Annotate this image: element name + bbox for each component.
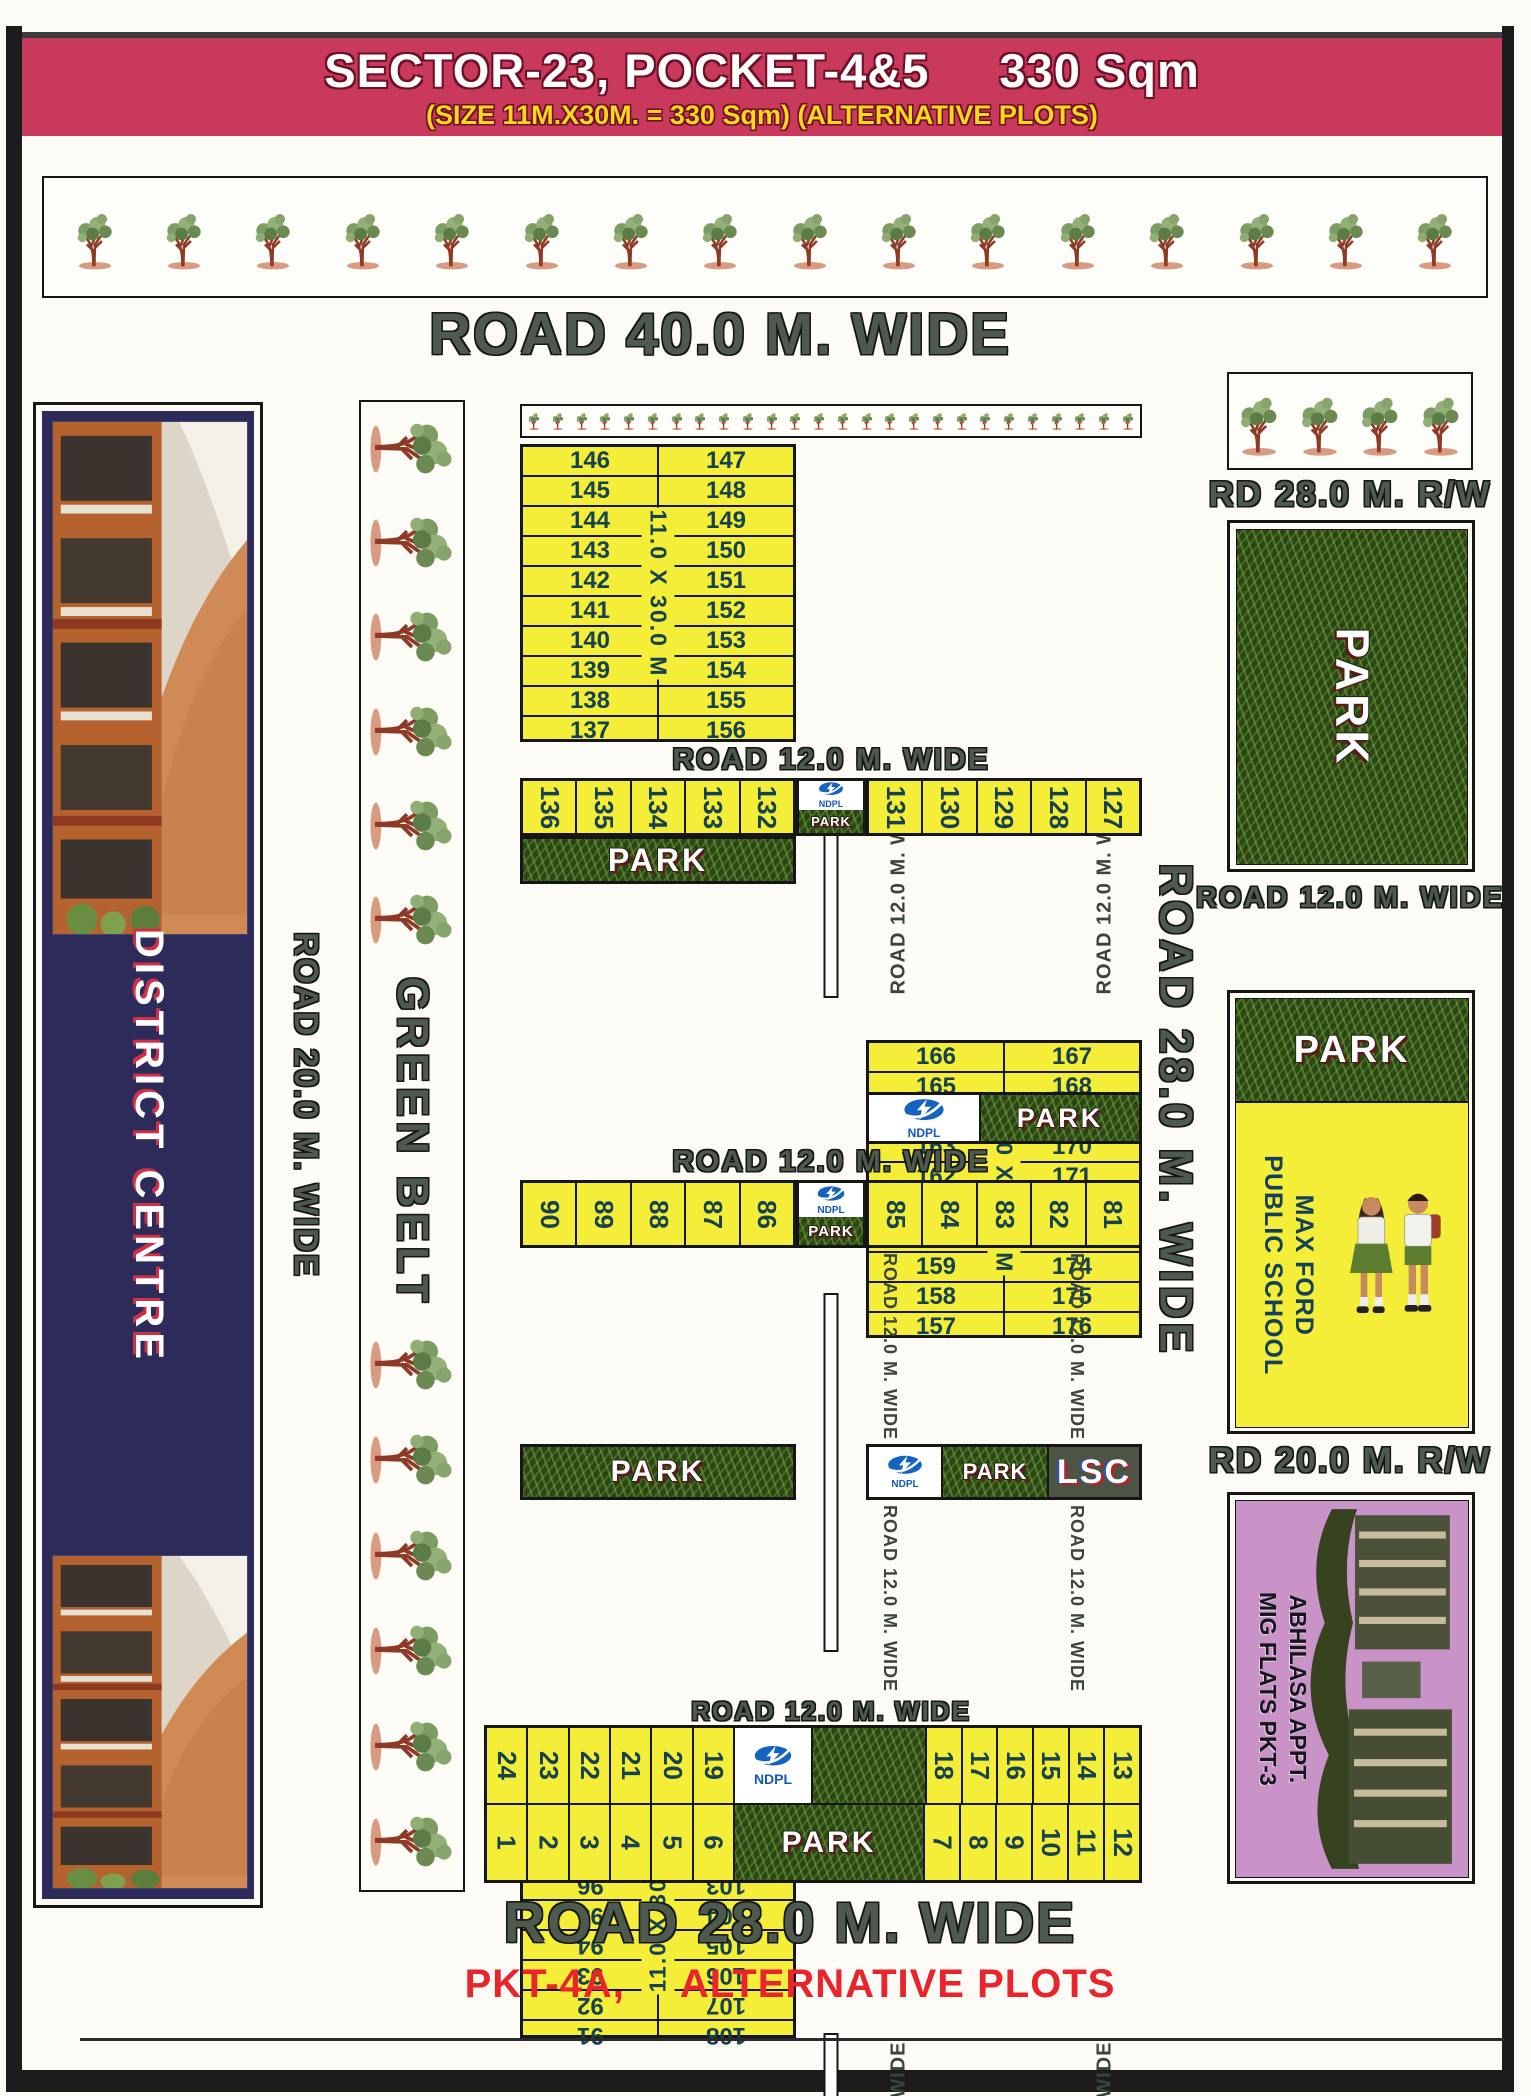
park-label: PARK bbox=[608, 842, 708, 879]
park-label: PARK bbox=[611, 1455, 706, 1489]
plot-number: 140 bbox=[570, 627, 610, 655]
plot-cell: 130 bbox=[923, 781, 977, 833]
plot-number: 156 bbox=[706, 717, 746, 745]
plot-row-136-132: 136135134133132 bbox=[520, 778, 796, 836]
plot-number: 84 bbox=[934, 1200, 965, 1229]
tree-icon bbox=[883, 408, 897, 435]
plot-row-18-13: 181716151413 bbox=[927, 1728, 1139, 1803]
plot-cell: 13 bbox=[1105, 1728, 1139, 1803]
road-28-bottom-label: ROAD 28.0 M. WIDE bbox=[420, 1891, 1160, 1955]
plot-number: 127 bbox=[1097, 785, 1128, 828]
plot-cell: 17 bbox=[963, 1728, 999, 1803]
school-name: MAX FORD PUBLIC SCHOOL bbox=[1257, 1155, 1320, 1375]
plot-cell: 11 bbox=[1069, 1805, 1105, 1880]
plot-number: 145 bbox=[570, 477, 610, 505]
plot-row-1-6: 123456 bbox=[487, 1805, 735, 1880]
road-12-vertical-label: ROAD 12.0 M. WIDE bbox=[887, 2041, 910, 2096]
park-patch: PARK bbox=[1236, 529, 1468, 865]
plot-cell: 83 bbox=[978, 1183, 1032, 1245]
ndpl-logo-icon bbox=[884, 1454, 926, 1478]
plot-cell: 1 bbox=[487, 1805, 528, 1880]
abhilasa-flats-inner: ABHILASA APPT. MIG FLATS PKT-3 bbox=[1235, 1500, 1469, 1878]
ndpl-logo-icon bbox=[898, 1097, 950, 1125]
ndpl-label: NDPL bbox=[817, 1205, 844, 1216]
plot-cell: 22 bbox=[570, 1728, 611, 1803]
page-title: SECTOR-23, POCKET-4&5 bbox=[324, 43, 929, 98]
plot-column: 147148149150151152153154155156 bbox=[657, 447, 793, 739]
plot-cell: 6 bbox=[694, 1805, 735, 1880]
park-box-right: PARK bbox=[1227, 520, 1475, 872]
plot-number: 88 bbox=[643, 1200, 674, 1229]
road-12-vertical-label-wrap: ROAD 12.0 M. WIDE bbox=[983, 1248, 1170, 1444]
abhilasa-line1: ABHILASA APPT. bbox=[1285, 1595, 1311, 1784]
header-band: SECTOR-23, POCKET-4&5 330 Sqm (SIZE 11M.… bbox=[22, 32, 1502, 136]
plot-number: 24 bbox=[491, 1751, 522, 1780]
road-median-strip bbox=[824, 2033, 839, 2096]
plot-cell: 24 bbox=[487, 1728, 528, 1803]
park-patch: PARK bbox=[981, 1095, 1139, 1141]
plot-number: 153 bbox=[706, 627, 746, 655]
ndpl-logo-icon bbox=[816, 781, 846, 798]
tree-icon bbox=[965, 188, 1011, 294]
plot-number: 134 bbox=[643, 785, 674, 828]
tree-icon bbox=[551, 408, 565, 435]
plot-block-a-left: 1461451441431421411401391381371471481491… bbox=[520, 444, 796, 742]
plot-cell: 2 bbox=[528, 1805, 569, 1880]
plot-number: 132 bbox=[751, 785, 782, 828]
abhilasa-line2: MIG FLATS PKT-3 bbox=[1255, 1592, 1281, 1786]
park-label: PARK bbox=[1294, 1029, 1411, 1072]
plot-number: 18 bbox=[928, 1751, 959, 1780]
plot-number: 12 bbox=[1106, 1828, 1137, 1857]
plot-cell: 4 bbox=[611, 1805, 652, 1880]
plot-cell: 134 bbox=[632, 781, 686, 833]
ndpl-park-strip-b: NDPL PARK bbox=[866, 1092, 1142, 1144]
plot-cell: 141 bbox=[523, 597, 657, 627]
tree-icon bbox=[340, 188, 386, 294]
school-park-inner: PARK MAX FORD PUBLIC SCHOOL bbox=[1235, 998, 1469, 1428]
road-12-vertical-label-wrap: ROAD 12.0 M. WIDE bbox=[983, 1500, 1170, 1697]
tree-icon bbox=[1144, 188, 1190, 294]
tree-icon bbox=[1097, 408, 1111, 435]
tree-icon bbox=[370, 1711, 454, 1783]
mini-tree-strip bbox=[520, 404, 1142, 438]
plot-column: 146145144143142141140139138137 bbox=[523, 447, 657, 739]
plot-cell: 9 bbox=[997, 1805, 1033, 1880]
tree-icon bbox=[250, 188, 296, 294]
plot-cell: 142 bbox=[523, 567, 657, 597]
plot-cell: 23 bbox=[528, 1728, 569, 1803]
tree-icon bbox=[978, 408, 992, 435]
plot-cell: 136 bbox=[523, 781, 577, 833]
tree-icon bbox=[370, 1615, 454, 1687]
plot-cell: 148 bbox=[659, 477, 793, 507]
plot-cell: 89 bbox=[577, 1183, 631, 1245]
plot-cell: 143 bbox=[523, 537, 657, 567]
tree-icon bbox=[622, 408, 636, 435]
plot-number: 144 bbox=[570, 507, 610, 535]
plot-cell: 153 bbox=[659, 627, 793, 657]
park-banner-c: PARK bbox=[520, 1444, 796, 1500]
district-centre-photo-bottom bbox=[52, 1555, 248, 1889]
tree-icon bbox=[598, 408, 612, 435]
plot-number: 137 bbox=[570, 717, 610, 745]
school-area: MAX FORD PUBLIC SCHOOL bbox=[1236, 1103, 1468, 1427]
plot-cell: 144 bbox=[523, 507, 657, 537]
tree-icon bbox=[1323, 188, 1369, 294]
plot-cell: 139 bbox=[523, 657, 657, 687]
tree-icon bbox=[812, 408, 826, 435]
plot-cell: 14 bbox=[1070, 1728, 1106, 1803]
plot-cell: 138 bbox=[523, 687, 657, 717]
plot-number: 10 bbox=[1034, 1828, 1065, 1857]
ndpl-label: NDPL bbox=[891, 1479, 918, 1490]
plot-cell: 151 bbox=[659, 567, 793, 597]
plot-cell: 140 bbox=[523, 627, 657, 657]
plot-cell: 3 bbox=[570, 1805, 611, 1880]
tree-icon bbox=[787, 188, 833, 294]
ndpl-label: NDPL bbox=[754, 1771, 792, 1787]
plot-cell: 108 bbox=[659, 2021, 793, 2049]
green-belt-trees-top bbox=[361, 402, 463, 967]
tree-icon bbox=[876, 188, 922, 294]
lsc-box: LSC bbox=[1049, 1447, 1139, 1497]
tree-icon bbox=[697, 188, 743, 294]
plot-number: 151 bbox=[706, 567, 746, 595]
tree-icon bbox=[1234, 188, 1280, 294]
plot-number: 3 bbox=[574, 1835, 605, 1849]
plot-number: 108 bbox=[706, 2021, 746, 2049]
plot-number: 2 bbox=[532, 1835, 563, 1849]
plot-cell: 152 bbox=[659, 597, 793, 627]
plot-number: 83 bbox=[989, 1200, 1020, 1229]
ndpl-box: NDPL bbox=[869, 1095, 981, 1141]
road-12-vertical-label: ROAD 12.0 M. WIDE bbox=[1093, 2041, 1116, 2096]
ndpl-box: NDPL bbox=[869, 1447, 943, 1497]
plot-row-24-19: 242322212019 bbox=[487, 1728, 735, 1803]
plot-number: 87 bbox=[697, 1200, 728, 1229]
plot-number: 7 bbox=[927, 1835, 958, 1849]
plot-number: 1 bbox=[491, 1835, 522, 1849]
tree-icon bbox=[955, 408, 969, 435]
plot-number: 141 bbox=[570, 597, 610, 625]
park-patch: PARK bbox=[799, 810, 863, 833]
rd-20-rw-label: RD 20.0 M. R/W bbox=[1180, 1440, 1520, 1482]
plot-number: 5 bbox=[656, 1835, 687, 1849]
road-corridor-c: ROAD 12.0 M. WIDEROAD 12.0 M. WIDE ROAD … bbox=[796, 1248, 866, 1697]
tree-icon bbox=[1026, 408, 1040, 435]
plot-number: 85 bbox=[880, 1200, 911, 1229]
plot-number: 6 bbox=[698, 1835, 729, 1849]
road-median-strip bbox=[824, 1293, 839, 1652]
tree-icon bbox=[370, 884, 454, 956]
school-name-line1: MAX FORD bbox=[1290, 1194, 1318, 1335]
ndpl-park-cell-c: NDPL PARK bbox=[796, 1180, 866, 1248]
tree-icon bbox=[907, 408, 921, 435]
park-label: PARK bbox=[963, 1459, 1028, 1485]
page-subtitle: (SIZE 11M.X30M. = 330 Sqm) (ALTERNATIVE … bbox=[426, 100, 1098, 131]
page-title-area: 330 Sqm bbox=[999, 43, 1199, 98]
park-label: PARK bbox=[811, 814, 851, 829]
green-belt-strip: GREEN BELT bbox=[359, 400, 465, 1892]
park-patch: PARK bbox=[943, 1447, 1049, 1497]
ndpl-park-lsc-strip: NDPL PARK LSC bbox=[866, 1444, 1142, 1500]
tree-icon bbox=[370, 696, 454, 768]
park-patch bbox=[813, 1728, 927, 1803]
plot-number: 146 bbox=[570, 447, 610, 475]
tree-icon bbox=[1296, 384, 1344, 468]
plot-cell: 85 bbox=[869, 1183, 923, 1245]
plot-cell: 156 bbox=[659, 717, 793, 745]
park-label: PARK bbox=[782, 1826, 877, 1860]
tree-icon bbox=[370, 1520, 454, 1592]
plot-number: 148 bbox=[706, 477, 746, 505]
tree-icon bbox=[1412, 188, 1458, 294]
tree-icon bbox=[1121, 408, 1135, 435]
plot-cell: 88 bbox=[632, 1183, 686, 1245]
plot-number: 154 bbox=[706, 657, 746, 685]
tree-icon bbox=[1417, 384, 1465, 468]
park-label: PARK bbox=[1017, 1103, 1104, 1134]
road-12-vertical-label: ROAD 12.0 M. WIDE bbox=[1066, 1252, 1087, 1439]
plot-number: 91 bbox=[577, 2021, 604, 2049]
plot-cell: 133 bbox=[686, 781, 740, 833]
plot-number: 142 bbox=[570, 567, 610, 595]
district-centre-photo-top bbox=[52, 421, 248, 935]
park-label: PARK bbox=[808, 1223, 853, 1240]
plot-cell: 90 bbox=[523, 1183, 577, 1245]
tree-icon bbox=[670, 408, 684, 435]
plot-cell: 19 bbox=[694, 1728, 735, 1803]
right-tree-box bbox=[1227, 372, 1473, 470]
plot-cell: 146 bbox=[523, 447, 657, 477]
park-patch: PARK bbox=[735, 1805, 925, 1880]
plot-cell: 154 bbox=[659, 657, 793, 687]
alternative-plots-note: ALTERNATIVE PLOTS bbox=[680, 1962, 1116, 2007]
tree-icon bbox=[1235, 384, 1283, 468]
tree-icon bbox=[693, 408, 707, 435]
abhilasa-flats-name: ABHILASA APPT. MIG FLATS PKT-3 bbox=[1252, 1592, 1312, 1786]
plot-number: 136 bbox=[534, 785, 565, 828]
park-patch: PARK bbox=[1236, 999, 1468, 1103]
plot-number: 135 bbox=[588, 785, 619, 828]
tree-icon bbox=[646, 408, 660, 435]
plot-number: 81 bbox=[1097, 1200, 1128, 1229]
plot-number: 21 bbox=[615, 1751, 646, 1780]
park-banner-b: PARK bbox=[520, 836, 796, 884]
plot-cell: 15 bbox=[1034, 1728, 1070, 1803]
green-belt-trees-bottom bbox=[361, 1317, 463, 1890]
ndpl-logo-icon bbox=[749, 1744, 797, 1770]
tree-icon bbox=[370, 413, 454, 485]
ndpl-box: NDPL bbox=[799, 781, 863, 810]
tree-icon bbox=[608, 188, 654, 294]
tree-icon bbox=[370, 1424, 454, 1496]
school-park-box: PARK MAX FORD PUBLIC SCHOOL bbox=[1227, 990, 1475, 1434]
tree-icon bbox=[429, 188, 475, 294]
plot-cell: 18 bbox=[927, 1728, 963, 1803]
tree-icon bbox=[1073, 408, 1087, 435]
plot-number: 86 bbox=[751, 1200, 782, 1229]
road-12-vertical-label: ROAD 12.0 M. WIDE bbox=[879, 1252, 900, 1439]
plot-cell: 150 bbox=[659, 537, 793, 567]
tree-icon bbox=[72, 188, 118, 294]
plot-block-d-top-row: 242322212019 NDPL 181716151413 bbox=[487, 1728, 1139, 1805]
plot-cell: 128 bbox=[1032, 781, 1086, 833]
district-centre-label: DISTRICT CENTRE bbox=[126, 929, 171, 1364]
tree-icon bbox=[1356, 384, 1404, 468]
plot-number: 23 bbox=[532, 1751, 563, 1780]
road-28-right-label-wrap: ROAD 28.0 M. WIDE bbox=[1148, 770, 1204, 1450]
road-12-label-h3: ROAD 12.0 M. WIDE bbox=[520, 1697, 1142, 1725]
plot-number: 22 bbox=[574, 1751, 605, 1780]
district-centre-label-wrap: DISTRICT CENTRE bbox=[42, 966, 254, 1326]
ndpl-box: NDPL bbox=[799, 1183, 863, 1217]
plot-number: 167 bbox=[1052, 1043, 1092, 1071]
frame-left-border bbox=[6, 26, 22, 2092]
plot-cell: 132 bbox=[741, 781, 793, 833]
ndpl-logo-icon bbox=[814, 1185, 848, 1204]
plot-number: 14 bbox=[1071, 1751, 1102, 1780]
plot-block-d-bottom-row: 123456 PARK 789101112 bbox=[487, 1805, 1139, 1880]
plot-cell: 166 bbox=[869, 1043, 1003, 1073]
plot-cell: 12 bbox=[1105, 1805, 1139, 1880]
plot-cell: 5 bbox=[652, 1805, 693, 1880]
road-20-left-label-wrap: ROAD 20.0 M. WIDE bbox=[280, 930, 332, 1280]
road-12-label-h1: ROAD 12.0 M. WIDE bbox=[520, 742, 1142, 778]
plot-cell: 127 bbox=[1087, 781, 1139, 833]
tree-icon bbox=[527, 408, 541, 435]
road-12-right-label: ROAD 12.0 M. WIDE bbox=[1180, 880, 1520, 916]
plot-number: 20 bbox=[656, 1751, 687, 1780]
plot-cell: 131 bbox=[869, 781, 923, 833]
plot-cell: 135 bbox=[577, 781, 631, 833]
plot-cell: 167 bbox=[1005, 1043, 1139, 1073]
tree-icon bbox=[741, 408, 755, 435]
rd-28-rw-label: RD 28.0 M. R/W bbox=[1180, 474, 1520, 516]
plot-cell: 16 bbox=[998, 1728, 1034, 1803]
plot-cell: 8 bbox=[961, 1805, 997, 1880]
plot-number: 9 bbox=[999, 1835, 1030, 1849]
footer-rule bbox=[80, 2038, 1504, 2041]
ndpl-label: NDPL bbox=[908, 1126, 941, 1140]
plot-number: 138 bbox=[570, 687, 610, 715]
frame-right-border bbox=[1502, 26, 1514, 2092]
plot-number: 17 bbox=[964, 1751, 995, 1780]
plot-cell: 145 bbox=[523, 477, 657, 507]
district-centre-inner: DISTRICT CENTRE bbox=[42, 411, 254, 1899]
green-belt-label-wrap: GREEN BELT bbox=[361, 967, 463, 1317]
tree-icon bbox=[370, 790, 454, 862]
tree-icon bbox=[717, 408, 731, 435]
park-patch: PARK bbox=[799, 1217, 863, 1245]
road-12-vertical-label: ROAD 12.0 M. WIDE bbox=[1066, 1505, 1087, 1692]
plot-number: 139 bbox=[570, 657, 610, 685]
road-12-vertical-label: ROAD 12.0 M. WIDE bbox=[879, 1505, 900, 1692]
plot-number: 89 bbox=[588, 1200, 619, 1229]
tree-icon bbox=[575, 408, 589, 435]
plot-number: 90 bbox=[534, 1200, 565, 1229]
plot-cell: 7 bbox=[925, 1805, 961, 1880]
road-28-right-label: ROAD 28.0 M. WIDE bbox=[1150, 863, 1202, 1356]
tree-icon bbox=[931, 408, 945, 435]
district-centre-panel: DISTRICT CENTRE bbox=[33, 402, 263, 1908]
plot-number: 155 bbox=[706, 687, 746, 715]
plot-number: 152 bbox=[706, 597, 746, 625]
school-name-line2: PUBLIC SCHOOL bbox=[1259, 1155, 1287, 1375]
plot-row-85-81: 8584838281 bbox=[866, 1180, 1142, 1248]
plot-cell: 21 bbox=[611, 1728, 652, 1803]
top-tree-strip bbox=[42, 176, 1488, 298]
park-label: PARK bbox=[1325, 628, 1379, 767]
road-40-label: ROAD 40.0 M. WIDE bbox=[280, 302, 1160, 366]
plot-row-90-86: 9089888786 bbox=[520, 1180, 796, 1248]
plot-row-7-12: 789101112 bbox=[925, 1805, 1139, 1880]
tree-icon bbox=[788, 408, 802, 435]
plot-cell: 87 bbox=[686, 1183, 740, 1245]
tree-icon bbox=[370, 601, 454, 673]
tree-icon bbox=[836, 408, 850, 435]
plot-cell: 129 bbox=[978, 781, 1032, 833]
plot-number: 15 bbox=[1035, 1751, 1066, 1780]
plot-cell: 147 bbox=[659, 447, 793, 477]
pocket-footnote: PKT-4A, ALTERNATIVE PLOTS bbox=[420, 1960, 1160, 2008]
plot-number: 8 bbox=[963, 1835, 994, 1849]
plot-number: 128 bbox=[1043, 785, 1074, 828]
tree-icon bbox=[765, 408, 779, 435]
plot-number: 4 bbox=[615, 1835, 646, 1849]
tree-icon bbox=[370, 507, 454, 579]
abhilasa-flats-name-wrap: ABHILASA APPT. MIG FLATS PKT-3 bbox=[1202, 1501, 1362, 1877]
plot-number: 150 bbox=[706, 537, 746, 565]
tree-icon bbox=[1050, 408, 1064, 435]
ndpl-label: NDPL bbox=[819, 799, 844, 809]
frame-bottom-border bbox=[6, 2070, 1514, 2092]
green-belt-label: GREEN BELT bbox=[387, 977, 437, 1307]
road-12-label-h2: ROAD 12.0 M. WIDE bbox=[520, 1144, 1142, 1180]
plot-cell: 91 bbox=[523, 2021, 657, 2049]
plot-block-d: 242322212019 NDPL 181716151413 123456 PA… bbox=[484, 1725, 1142, 1883]
tree-icon bbox=[519, 188, 565, 294]
plot-number: 11 bbox=[1071, 1829, 1102, 1857]
plot-cell: 137 bbox=[523, 717, 657, 745]
plot-number: 129 bbox=[989, 785, 1020, 828]
plot-number: 149 bbox=[706, 507, 746, 535]
plot-number: 133 bbox=[697, 785, 728, 828]
plot-number: 166 bbox=[916, 1043, 956, 1071]
plot-cell: 82 bbox=[1032, 1183, 1086, 1245]
school-children-illustration bbox=[1338, 1180, 1458, 1350]
tree-icon bbox=[370, 1329, 454, 1401]
plot-number: 16 bbox=[1000, 1751, 1031, 1780]
tree-icon bbox=[860, 408, 874, 435]
plot-cell: 20 bbox=[652, 1728, 693, 1803]
plot-number: 143 bbox=[570, 537, 610, 565]
tree-icon bbox=[161, 188, 207, 294]
road-20-left-label: ROAD 20.0 M. WIDE bbox=[287, 932, 325, 1278]
tree-icon bbox=[1055, 188, 1101, 294]
plot-cell: 84 bbox=[923, 1183, 977, 1245]
tree-icon bbox=[370, 1806, 454, 1878]
page-title-row: SECTOR-23, POCKET-4&5 330 Sqm bbox=[324, 43, 1200, 98]
pocket-name: PKT-4A, bbox=[465, 1962, 625, 2007]
ndpl-box: NDPL bbox=[735, 1728, 813, 1803]
ndpl-park-cell-b: NDPL PARK bbox=[796, 778, 866, 836]
plot-cell: 155 bbox=[659, 687, 793, 717]
plot-row-131-127: 131130129128127 bbox=[866, 778, 1142, 836]
plot-number: 147 bbox=[706, 447, 746, 475]
abhilasa-flats-box: ABHILASA APPT. MIG FLATS PKT-3 bbox=[1227, 1492, 1475, 1884]
